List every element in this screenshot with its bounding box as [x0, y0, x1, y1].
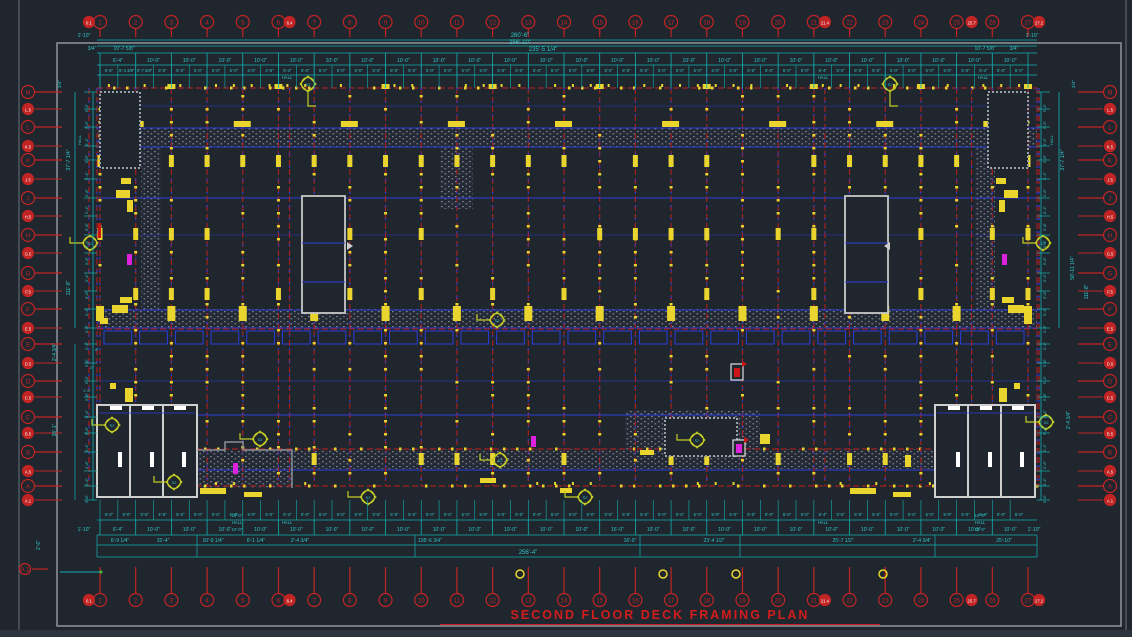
grid-bubble-label: 19	[739, 598, 746, 604]
dim-text: 6'-4 3/8"	[119, 68, 135, 73]
dim-text: 2"	[90, 365, 94, 370]
grid-bubble-label: 20	[775, 598, 782, 604]
dim-text: 15'-4"	[157, 538, 170, 544]
dim-text: 5'-0"	[961, 68, 970, 73]
grid-bubble-label: 23	[882, 20, 889, 26]
dim-text: 5'-0"	[248, 512, 257, 517]
dim-text: 5'-0"	[944, 68, 953, 73]
dim-text: 4'-5"	[158, 512, 167, 517]
dim-text: 4'-6"	[265, 68, 274, 73]
dim-text: 5'-0"	[372, 512, 381, 517]
grid-bubble-label: 12	[489, 20, 496, 26]
dim-text: 10'-0"	[825, 58, 838, 64]
grid-bubble-label: 21	[811, 20, 818, 26]
shaft-opening	[665, 418, 737, 456]
dim-text: 5'-0"	[408, 68, 417, 73]
grid-bubble-label: B	[1108, 450, 1112, 456]
dim-text: 5'-8"	[1042, 290, 1047, 299]
grid-bubble-label: E.5	[1107, 326, 1114, 331]
dim-text: 5'-8"	[84, 460, 89, 469]
dim-text: 10'-0"	[975, 513, 986, 518]
dim-text: 5'-0"	[694, 512, 703, 517]
dim-text: 5'-4"	[819, 512, 828, 517]
dim-text: 5'-0"	[212, 512, 221, 517]
dim-text: 5'-3"	[105, 512, 114, 517]
marker-label: S2	[498, 458, 504, 463]
dim-text: 10'-0"	[861, 58, 874, 64]
grid-bubble-label: H	[1108, 233, 1112, 239]
dim-text: 16'-0"	[624, 538, 637, 544]
dim-text: 10'-0"	[504, 527, 517, 533]
grid-bubble-label: B.5	[1107, 431, 1114, 436]
dim-text: 5'-0"	[872, 512, 881, 517]
grid-bubble-label: E	[26, 342, 30, 348]
grid-bubble-label: K	[1108, 158, 1112, 164]
dim-text: 5'-0"	[301, 512, 310, 517]
dim-text: 5'-0"	[248, 68, 257, 73]
dim-text: 1'-10"	[78, 527, 91, 533]
grid-bubble-label: 11	[454, 598, 461, 604]
dim-text: 5'-0"	[765, 68, 774, 73]
dim-text: 5'-8"	[84, 120, 89, 129]
dim-text: 5'-0"	[158, 68, 167, 73]
marker-label: S2	[495, 318, 501, 323]
grid-bubble-label: D.5	[1107, 361, 1114, 366]
dim-text: 10'-0"	[397, 58, 410, 64]
dim-text: 5'-0"	[890, 68, 899, 73]
dim-text: 5'-4"	[1042, 375, 1047, 384]
dim-text: 5'-4"	[1042, 443, 1047, 452]
dim-text: 105'-6 3/4"	[418, 538, 442, 544]
grid-bubble-label: H	[26, 233, 30, 239]
grid-bubble-label: D.5	[25, 361, 32, 366]
grid-bubble-label: 16	[632, 20, 639, 26]
dim-text: 5'-8"	[84, 358, 89, 367]
dim-text: 5'-0"	[854, 68, 863, 73]
marker-label: S2	[172, 480, 178, 485]
grid-bubble-label: 25.7	[968, 20, 977, 25]
dim-text: 1'-10"	[1026, 33, 1039, 39]
grid-bubble-label: B	[26, 450, 30, 456]
dim-text: 10'-7 5/8"	[113, 46, 134, 52]
dim-text: 36'-1"	[52, 423, 58, 436]
grid-bubble-label: 17	[668, 20, 675, 26]
grid-bubble-label: 16	[632, 598, 639, 604]
grid-bubble-label: A	[1108, 484, 1112, 490]
dim-text: 5'-8"	[84, 222, 89, 231]
grid-bubble-label: B.5	[25, 431, 32, 436]
dim-text: 5'-8"	[1042, 494, 1047, 503]
dim-text: 5'-4"	[84, 137, 89, 146]
dim-text: 10'-0"	[290, 58, 303, 64]
dim-text: 10'-0"	[183, 58, 196, 64]
dim-text: 5'-0"	[194, 512, 203, 517]
dim-text: 5'-4"	[84, 171, 89, 180]
dim-text: 10'-9 1/4"	[202, 538, 223, 544]
dim-text: 5'-0"	[390, 68, 399, 73]
dim-text: 5'-8"	[1042, 392, 1047, 401]
grid-bubble-label: H.5	[25, 214, 32, 219]
dim-text: 10'-0"	[504, 58, 517, 64]
dim-text: 5'-8"	[84, 256, 89, 265]
dim-text: 8"	[95, 347, 99, 352]
grid-bubble-label: 6.4	[287, 20, 293, 25]
dim-text: 5'-0"	[765, 512, 774, 517]
dim-text: 5'-0"	[676, 512, 685, 517]
grid-bubble-label: 18	[703, 20, 710, 26]
dim-text: 37'-7 1/4"	[1060, 149, 1066, 170]
grid-bubble-label: 27	[1025, 598, 1032, 604]
dim-text: 10'-0"	[361, 58, 374, 64]
dim-text: 10'-0"	[932, 58, 945, 64]
dim-text: 5'-0"	[908, 512, 917, 517]
grid-bubble-label: L.5	[1107, 107, 1113, 112]
grid-bubble-label: D	[1108, 379, 1113, 385]
dim-text: 5'-4"	[84, 409, 89, 418]
framing-plan-canvas[interactable]: S2S2S2S2S2S2S2S2S2S2S2S2S211223344556677…	[0, 0, 1132, 637]
dim-text: 5'-4"	[84, 205, 89, 214]
dim-text: 5'-0"	[533, 68, 542, 73]
dim-text: 5'-0"	[140, 512, 149, 517]
dim-text: 10'-0"	[683, 58, 696, 64]
dim-text: 10'-0"	[897, 58, 910, 64]
dim-text: 3/4"	[88, 46, 97, 52]
dim-text: 10'-0"	[290, 527, 303, 533]
dim-text: 5'-0"	[658, 68, 667, 73]
dim-text: 5'-8"	[84, 290, 89, 299]
dim-text: 5'-0"	[640, 68, 649, 73]
dim-text: 5'-8"	[84, 154, 89, 163]
dim-text: 111'-8"	[1084, 284, 1090, 299]
grid-bubble-label: 24	[918, 20, 925, 26]
dim-text: 5'-8"	[1042, 222, 1047, 231]
dim-text: 10'-0"	[183, 527, 196, 533]
dim-text: 5'-0"	[783, 68, 792, 73]
dim-text: 10'-0"	[575, 58, 588, 64]
dim-text: 5'-0"	[729, 512, 738, 517]
dim-text: 10'-0"	[254, 527, 267, 533]
dim-text: 10'-0"	[147, 58, 160, 64]
dim-text: 5'-0"	[997, 68, 1006, 73]
grid-bubble-label: L.5	[25, 107, 31, 112]
grid-bubble-label: 27	[1025, 20, 1032, 26]
grid-bubble-label: 10	[418, 598, 425, 604]
dim-text: 5'-0"	[622, 68, 631, 73]
dim-text: 256'-4"	[519, 550, 538, 556]
grid-bubble-label: K	[26, 158, 30, 164]
hall-label: HALL	[282, 520, 293, 525]
grid-bubble-label: 19	[739, 20, 746, 26]
dim-text: 5'-0"	[337, 68, 346, 73]
dim-text: 10'-0"	[219, 527, 232, 533]
dim-text: 6'-4"	[113, 527, 123, 533]
grid-bubble-label: 21	[811, 598, 818, 604]
dim-text: 5'-4"	[1042, 341, 1047, 350]
grid-bubble-label: 26	[989, 598, 996, 604]
grid-bubble-label: A.1	[1107, 498, 1114, 503]
grid-bubble-label: 13	[525, 598, 532, 604]
dim-text: 5'-0"	[551, 512, 560, 517]
marker-label: S2	[583, 495, 589, 500]
dim-text: 5'-0"	[926, 512, 935, 517]
dim-text: 10'-0"	[825, 527, 838, 533]
dim-text: 5'-8"	[84, 392, 89, 401]
marker-label: S2	[110, 423, 116, 428]
dim-text: 5'-0"	[337, 512, 346, 517]
grid-bubble-label: 23	[882, 598, 889, 604]
cad-viewport[interactable]: S2S2S2S2S2S2S2S2S2S2S2S2S211223344556677…	[0, 0, 1132, 637]
grid-bubble-label: F	[26, 307, 30, 313]
dim-text: 5'-0"	[533, 512, 542, 517]
dim-text: 10'-0"	[790, 527, 803, 533]
grid-bubble-label: 6.4	[287, 598, 293, 603]
dim-text: 2'-4 3/4"	[52, 343, 58, 362]
dim-text: 5'-0"	[712, 68, 721, 73]
dim-text: 6'-9 1/4"	[111, 538, 130, 544]
dim-text: 10'-0"	[611, 58, 624, 64]
shaft-opening	[988, 92, 1028, 168]
dim-text: 2'-4 3/4"	[1066, 411, 1072, 430]
dim-text: 5'-0"	[426, 68, 435, 73]
dim-text: 5'-4"	[1042, 103, 1047, 112]
grid-bubble-label: J	[1109, 196, 1112, 202]
dim-text: 10'-0"	[540, 58, 553, 64]
dim-text: 10'-0"	[232, 513, 243, 518]
hatch-band	[141, 128, 161, 309]
dim-text: 5'-0"	[783, 512, 792, 517]
grid-bubble-label: M	[1108, 90, 1113, 96]
dim-text: 5'-8"	[1042, 120, 1047, 129]
dim-text: 5'-0"	[587, 68, 596, 73]
dim-text: 5'-0"	[926, 68, 935, 73]
dim-text: HALL	[975, 520, 986, 525]
dim-text: 5'-0"	[319, 512, 328, 517]
dim-text: 5'-4"	[283, 68, 292, 73]
dim-text: 10'-0"	[754, 527, 767, 533]
marker-label: S2	[1044, 420, 1050, 425]
grid-bubble-label: G.5	[1107, 251, 1114, 256]
grid-bubble-label: D	[26, 379, 31, 385]
dim-text: 10'-0"	[975, 527, 986, 532]
dim-text: 5'-0"	[176, 68, 185, 73]
dim-text: 5'-0"	[729, 68, 738, 73]
marker-label: S2	[366, 495, 372, 500]
marker-label: S2	[695, 438, 701, 443]
dim-text: 5'-0"	[265, 512, 274, 517]
dim-text: 5'-0"	[658, 512, 667, 517]
grid-bubble-label: F.5	[25, 289, 31, 294]
dim-text: 3/4"	[57, 80, 62, 88]
grid-bubble-label: C	[1108, 415, 1113, 421]
grid-bubble-label: G	[26, 271, 31, 277]
marker-label: S2	[258, 437, 264, 442]
dim-text: 5'-4"	[1042, 307, 1047, 316]
dim-text: 5'-8"	[1042, 358, 1047, 367]
dim-text: 5'-0"	[230, 68, 239, 73]
dim-text: 2'-4 3/4"	[913, 538, 932, 544]
grid-bubble-label: 15	[596, 598, 603, 604]
dim-text: 16'-0"	[611, 527, 624, 533]
grid-bubble-label: 21.4	[821, 20, 830, 25]
dim-text: 5'-0"	[301, 68, 310, 73]
dim-text: 5'-4"	[1042, 171, 1047, 180]
dim-text: 5'-8"	[84, 494, 89, 503]
dim-text: 10'-0"	[718, 58, 731, 64]
grid-bubble-label: C.5	[25, 395, 32, 400]
dim-text: 5'-8"	[1042, 154, 1047, 163]
dim-text: 10'-0"	[397, 527, 410, 533]
marker-label: S2	[306, 82, 312, 87]
dim-text: 5'-0"	[176, 512, 185, 517]
dim-text: 5'-4"	[1042, 409, 1047, 418]
grid-bubble-label: A.1	[20, 567, 30, 573]
dim-text: 5'-0"	[444, 512, 453, 517]
dim-text: 5'-0"	[997, 512, 1006, 517]
grid-bubble-label: 0.1	[86, 20, 92, 25]
dim-text: 5'-0"	[747, 512, 756, 517]
dim-text: 5'-4"	[819, 68, 828, 73]
dim-text: 5'-0"	[712, 512, 721, 517]
dim-text: 23'-4 1/2"	[703, 538, 724, 544]
grid-bubble-label: 14	[561, 20, 568, 26]
grid-bubble-label: A	[26, 484, 30, 490]
dim-text: 5'-0"	[604, 68, 613, 73]
dim-text: 5'-0"	[480, 512, 489, 517]
dim-text: 10'-0"	[540, 527, 553, 533]
grid-bubble-label: J	[27, 196, 30, 202]
dim-text: 37'-7 1/4"	[66, 149, 72, 170]
dim-text: 5'-0"	[551, 68, 560, 73]
dim-text: 5'-8"	[84, 426, 89, 435]
grid-bubble-label: 12	[489, 598, 496, 604]
dim-text: 3/4"	[1071, 80, 1076, 88]
dim-text: 1'-5"	[83, 388, 92, 393]
hall-label: HALL	[818, 520, 829, 525]
dim-text: 5'-0"	[497, 68, 506, 73]
dim-text: 5'-0"	[961, 512, 970, 517]
grid-bubble-label: 20	[775, 20, 782, 26]
dim-text: 260'-6"	[511, 33, 530, 39]
dim-text: 10'-0"	[861, 527, 874, 533]
grid-bubble-label: 26	[989, 20, 996, 26]
dim-text: 6'-4"	[113, 58, 123, 64]
hall-label: HALL	[1049, 134, 1054, 145]
dim-text: 5'-0"	[622, 512, 631, 517]
dim-text: 10'-0"	[1004, 58, 1017, 64]
grid-bubble-label: A.1	[25, 498, 32, 503]
dim-text: 5'-0"	[801, 512, 810, 517]
hatch-band	[97, 128, 1037, 147]
dim-text: 5'-4"	[283, 512, 292, 517]
dim-text: 10'-0"	[326, 58, 339, 64]
grid-bubble-label: 27.2	[1035, 20, 1044, 25]
dim-text: 10'-0"	[361, 527, 374, 533]
grid-bubble-label: K.5	[25, 144, 32, 149]
grid-bubble-label: C.5	[1107, 395, 1114, 400]
dim-text: 5'-0"	[515, 68, 524, 73]
dim-text: 10'-0"	[790, 58, 803, 64]
dim-text: 5'-0"	[890, 512, 899, 517]
dim-text: HALL	[232, 520, 243, 525]
dim-text: 10'-0"	[433, 58, 446, 64]
dim-text: 5'-4"	[84, 273, 89, 282]
grid-bubble-label: 11	[454, 20, 461, 26]
grid-bubble-label: 22	[846, 20, 853, 26]
dim-text: 5'-8"	[1042, 460, 1047, 469]
hall-label: HALL	[282, 75, 293, 80]
dim-text: 5'-4"	[84, 307, 89, 316]
dim-text: 10'-0"	[575, 527, 588, 533]
dim-text: 5'-4"	[1042, 477, 1047, 486]
grid-bubble-label: A.5	[25, 469, 32, 474]
dim-text: 5'-0"	[1015, 512, 1024, 517]
grid-bubble-label: 27.2	[1035, 598, 1044, 603]
drawing-title: SECOND FLOOR DECK FRAMING PLAN	[440, 608, 880, 625]
dim-text: 1'-10"	[78, 33, 91, 39]
hatch-band	[97, 309, 1037, 328]
grid-bubble-label: 24	[918, 598, 925, 604]
dim-text: 5'-4"	[84, 477, 89, 486]
dim-text: 10'-0"	[647, 527, 660, 533]
dim-text: 1'-10"	[1028, 527, 1041, 533]
dim-text: 10'-0"	[718, 527, 731, 533]
dim-text: 10'-0"	[683, 527, 696, 533]
dim-text: 5'-0"	[569, 512, 578, 517]
dim-text: 10'-0"	[754, 58, 767, 64]
dim-text: 5'-4"	[1042, 205, 1047, 214]
dim-text: 5'-4"	[84, 375, 89, 384]
dim-text: 25'-7 1/2"	[832, 538, 853, 544]
dim-text: 58'-11 1/4"	[1070, 256, 1076, 280]
grid-bubble-label: H.5	[1107, 214, 1114, 219]
dim-text: 5'-8"	[84, 324, 89, 333]
grid-bubble-label: 25	[953, 20, 960, 26]
grid-bubble-label: J.5	[25, 177, 31, 182]
dim-text: 5'-8"	[1042, 426, 1047, 435]
dim-text: 5'-0"	[480, 68, 489, 73]
dim-text: 235'-5 1/4"	[529, 47, 558, 53]
marker-label: S2	[888, 82, 894, 87]
grid-bubble-label: F.5	[1107, 289, 1113, 294]
dim-text: 5'-0"	[497, 512, 506, 517]
dim-text: 10'-0"	[647, 58, 660, 64]
dim-text: 5'-8"	[1042, 256, 1047, 265]
dim-text: 256'-10"	[509, 40, 531, 46]
dim-text: 10'-0"	[147, 527, 160, 533]
dim-text: 10'-0"	[232, 527, 243, 532]
dim-text: 5'-4"	[1042, 239, 1047, 248]
dim-text: 5'-0"	[944, 512, 953, 517]
dim-text: 10'-0"	[326, 527, 339, 533]
dim-text: 5'-0"	[462, 512, 471, 517]
dim-text: 5'-8"	[1042, 324, 1047, 333]
dim-text: 5'-0"	[319, 68, 328, 73]
dim-text: 5'-0"	[640, 512, 649, 517]
dim-text: 5'-0"	[801, 68, 810, 73]
dim-text: 5'-0"	[355, 512, 364, 517]
dim-text: 5'-8"	[84, 188, 89, 197]
dim-text: 5'-0"	[390, 512, 399, 517]
dim-text: 10'-0"	[1004, 527, 1017, 533]
grid-bubble-label: 13	[525, 20, 532, 26]
grid-bubble-label: M	[26, 90, 31, 96]
dim-text: 5'-4"	[84, 103, 89, 112]
dim-text: 5'-8"	[1042, 188, 1047, 197]
dim-text: 5'-0"	[872, 68, 881, 73]
dim-text: 5'-4"	[84, 239, 89, 248]
dim-text: 5'-0"	[355, 68, 364, 73]
dim-text: 5'-0"	[515, 512, 524, 517]
